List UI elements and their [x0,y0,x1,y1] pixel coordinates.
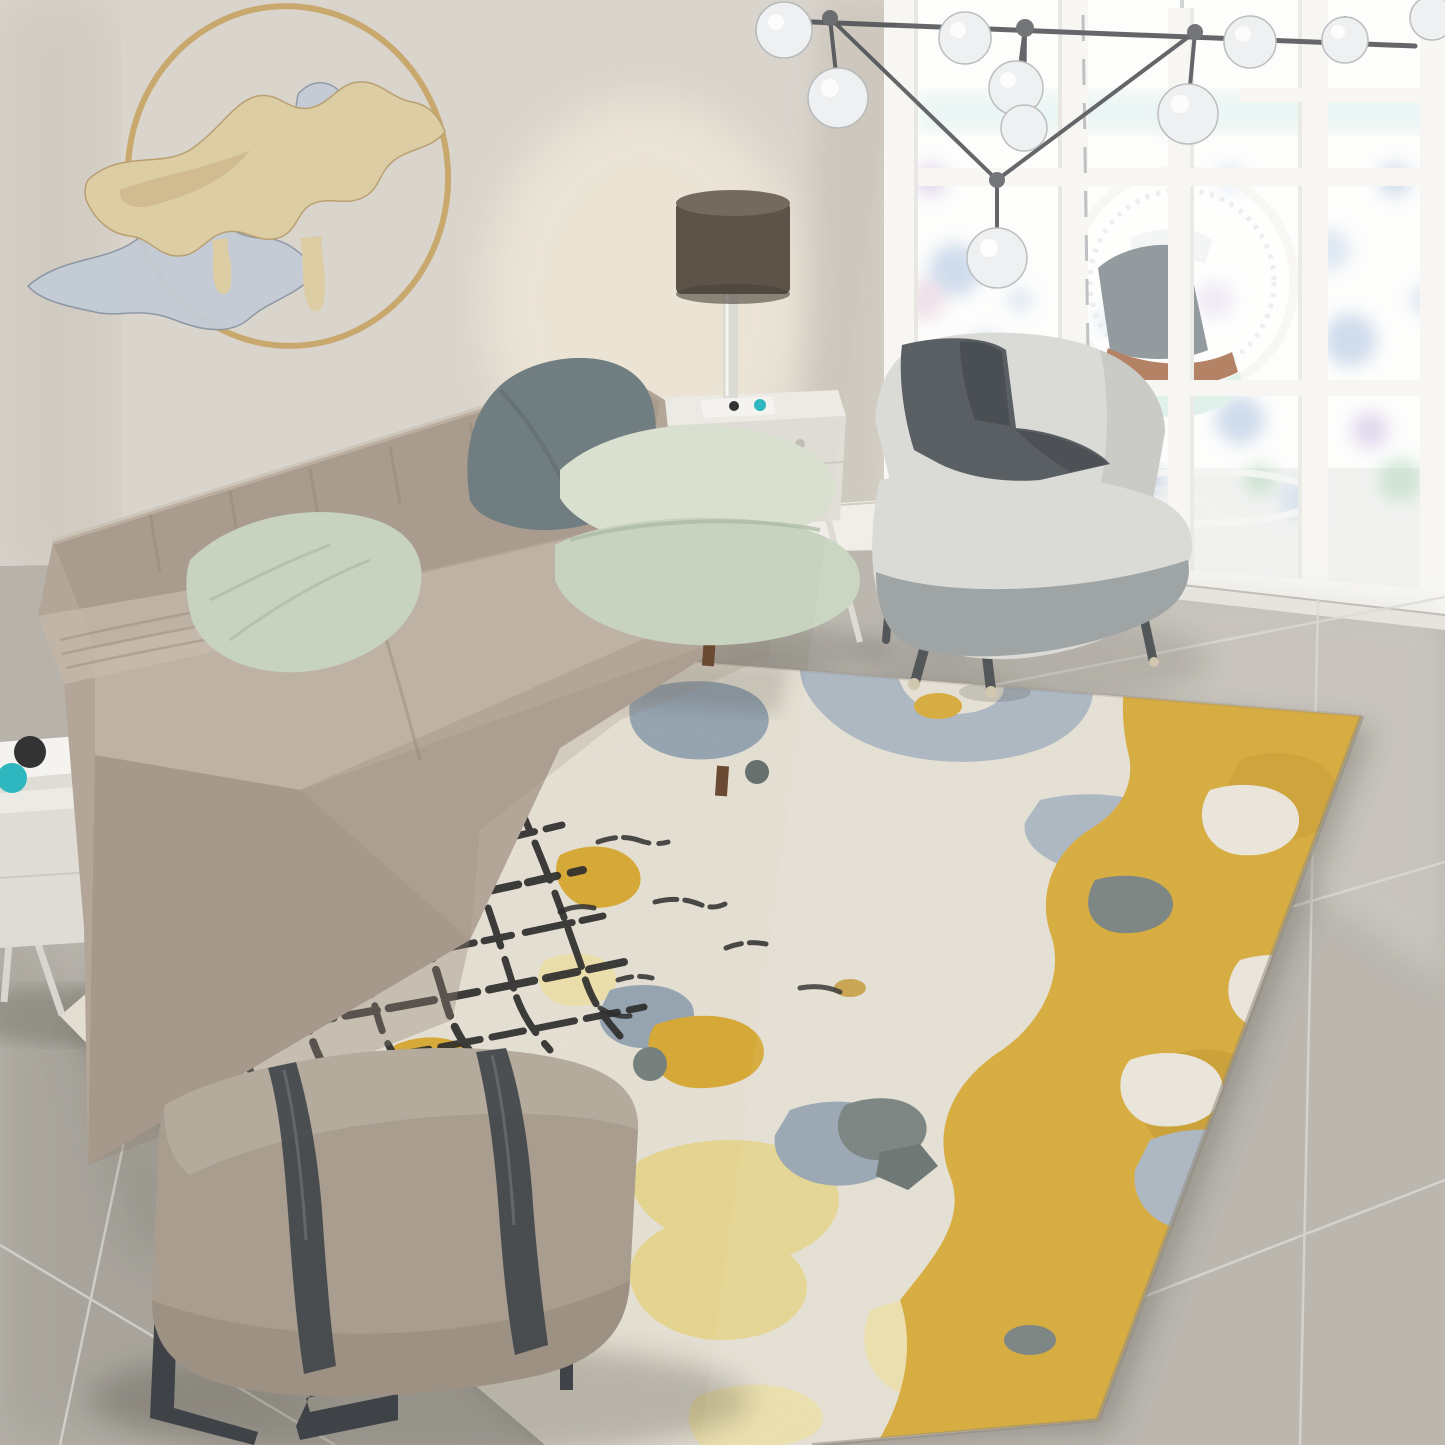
lamp-shade-top [676,190,790,216]
lamp-shade-bottom [676,284,790,304]
living-room-photo [0,0,1445,1445]
lamp-book-dark-mark [729,401,739,411]
scene-canvas [0,0,1445,1445]
lamp-stem [723,290,738,398]
lamp-book-teal-mark [754,399,766,411]
sofa-leg-2 [715,766,729,797]
